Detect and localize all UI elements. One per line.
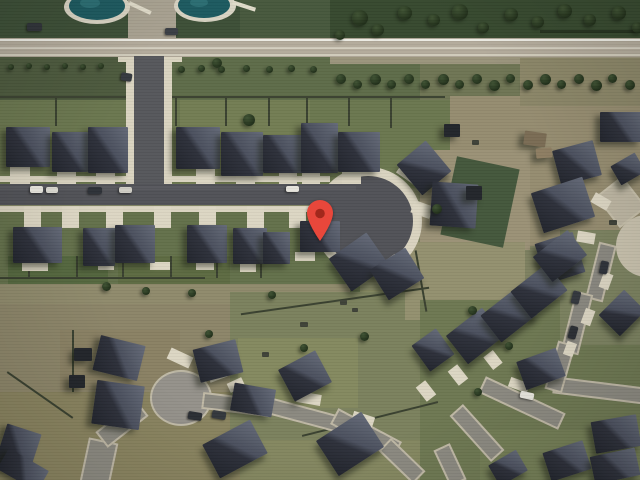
tree [300, 344, 308, 352]
fence [348, 98, 350, 126]
tree [574, 74, 584, 84]
tree [353, 80, 362, 89]
tree [370, 74, 381, 85]
house [91, 380, 145, 430]
tree [198, 65, 205, 72]
tree [288, 65, 295, 72]
tree [360, 332, 369, 341]
house [6, 127, 50, 167]
debris [300, 322, 308, 327]
tree [474, 388, 482, 396]
house [301, 123, 338, 173]
tree [142, 287, 150, 295]
house [536, 147, 553, 158]
debris [340, 300, 347, 305]
tree [432, 204, 442, 214]
tree [455, 80, 464, 89]
tree [468, 306, 477, 315]
tree [212, 58, 222, 68]
car [165, 28, 178, 35]
tree [505, 8, 518, 21]
fence [0, 277, 205, 279]
tree [98, 63, 104, 69]
tree [591, 80, 602, 91]
tree [452, 4, 468, 20]
fence [0, 96, 445, 98]
tree [80, 64, 86, 70]
car [27, 23, 42, 31]
tree [404, 74, 414, 84]
car [30, 186, 43, 193]
paving [22, 262, 48, 271]
tree [478, 22, 489, 33]
car [120, 72, 132, 82]
satellite-map[interactable] [0, 0, 640, 480]
tree [372, 24, 384, 36]
paving [0, 54, 640, 56]
tree [352, 10, 368, 26]
tree [505, 342, 513, 350]
tree [584, 14, 596, 26]
tree [506, 74, 515, 83]
tree [489, 80, 500, 91]
fence [306, 98, 308, 126]
debris [352, 308, 358, 312]
paving [150, 262, 170, 270]
house [221, 132, 263, 176]
pin-body [307, 200, 333, 241]
house [466, 186, 482, 200]
tree [178, 66, 185, 73]
house [263, 135, 303, 173]
house [115, 225, 155, 263]
road [134, 56, 164, 188]
paving [154, 206, 171, 228]
location-pin-icon [307, 200, 333, 241]
house [13, 227, 62, 263]
fence [390, 98, 392, 128]
house [74, 348, 92, 361]
paving [295, 252, 315, 261]
tree [625, 80, 635, 90]
tree [523, 80, 533, 90]
tree [205, 330, 213, 338]
car [119, 187, 132, 193]
house [444, 124, 460, 137]
paving [196, 262, 214, 270]
tree [557, 80, 566, 89]
tree [398, 6, 412, 20]
fence [175, 98, 177, 126]
tree [268, 291, 276, 299]
tree [44, 64, 50, 70]
debris [262, 352, 269, 357]
fence [170, 256, 172, 278]
terrain-patch [240, 0, 330, 38]
tree [612, 6, 626, 20]
tree [26, 63, 32, 69]
tree [438, 74, 449, 85]
house [69, 375, 85, 388]
tree [243, 114, 255, 126]
sidewalk [164, 57, 172, 187]
tree [310, 66, 317, 73]
house [233, 228, 267, 264]
car [46, 187, 58, 193]
fence [540, 30, 640, 33]
fence [268, 98, 270, 126]
house [600, 112, 640, 142]
fence [76, 256, 78, 278]
fence [225, 98, 227, 126]
tree [335, 30, 345, 40]
tree [421, 80, 430, 89]
paving [247, 206, 264, 228]
paving [0, 47, 640, 49]
tree [428, 14, 440, 26]
house [338, 132, 380, 172]
tree [336, 74, 346, 84]
tree [243, 65, 250, 72]
house [83, 228, 115, 266]
location-pin[interactable] [307, 200, 333, 241]
car [286, 186, 299, 192]
paving [240, 264, 256, 272]
tree [532, 16, 544, 28]
tree [387, 80, 396, 89]
tree [188, 289, 196, 297]
house [263, 232, 290, 264]
paving [0, 39, 640, 41]
tree [632, 22, 640, 33]
house [88, 127, 128, 173]
pin-dot [315, 209, 325, 219]
tree [8, 64, 14, 70]
car [88, 187, 102, 194]
tree [472, 74, 482, 84]
tree [62, 63, 68, 69]
house [52, 132, 88, 172]
paving [24, 206, 41, 228]
fence [55, 98, 57, 126]
tree [558, 4, 572, 18]
paving [62, 206, 79, 228]
debris [472, 140, 479, 145]
debris [609, 220, 617, 225]
tree [266, 66, 273, 73]
tree [102, 282, 111, 291]
tree [608, 74, 617, 83]
house [187, 225, 227, 263]
tree [540, 74, 551, 85]
house [176, 127, 220, 169]
house [523, 131, 547, 148]
